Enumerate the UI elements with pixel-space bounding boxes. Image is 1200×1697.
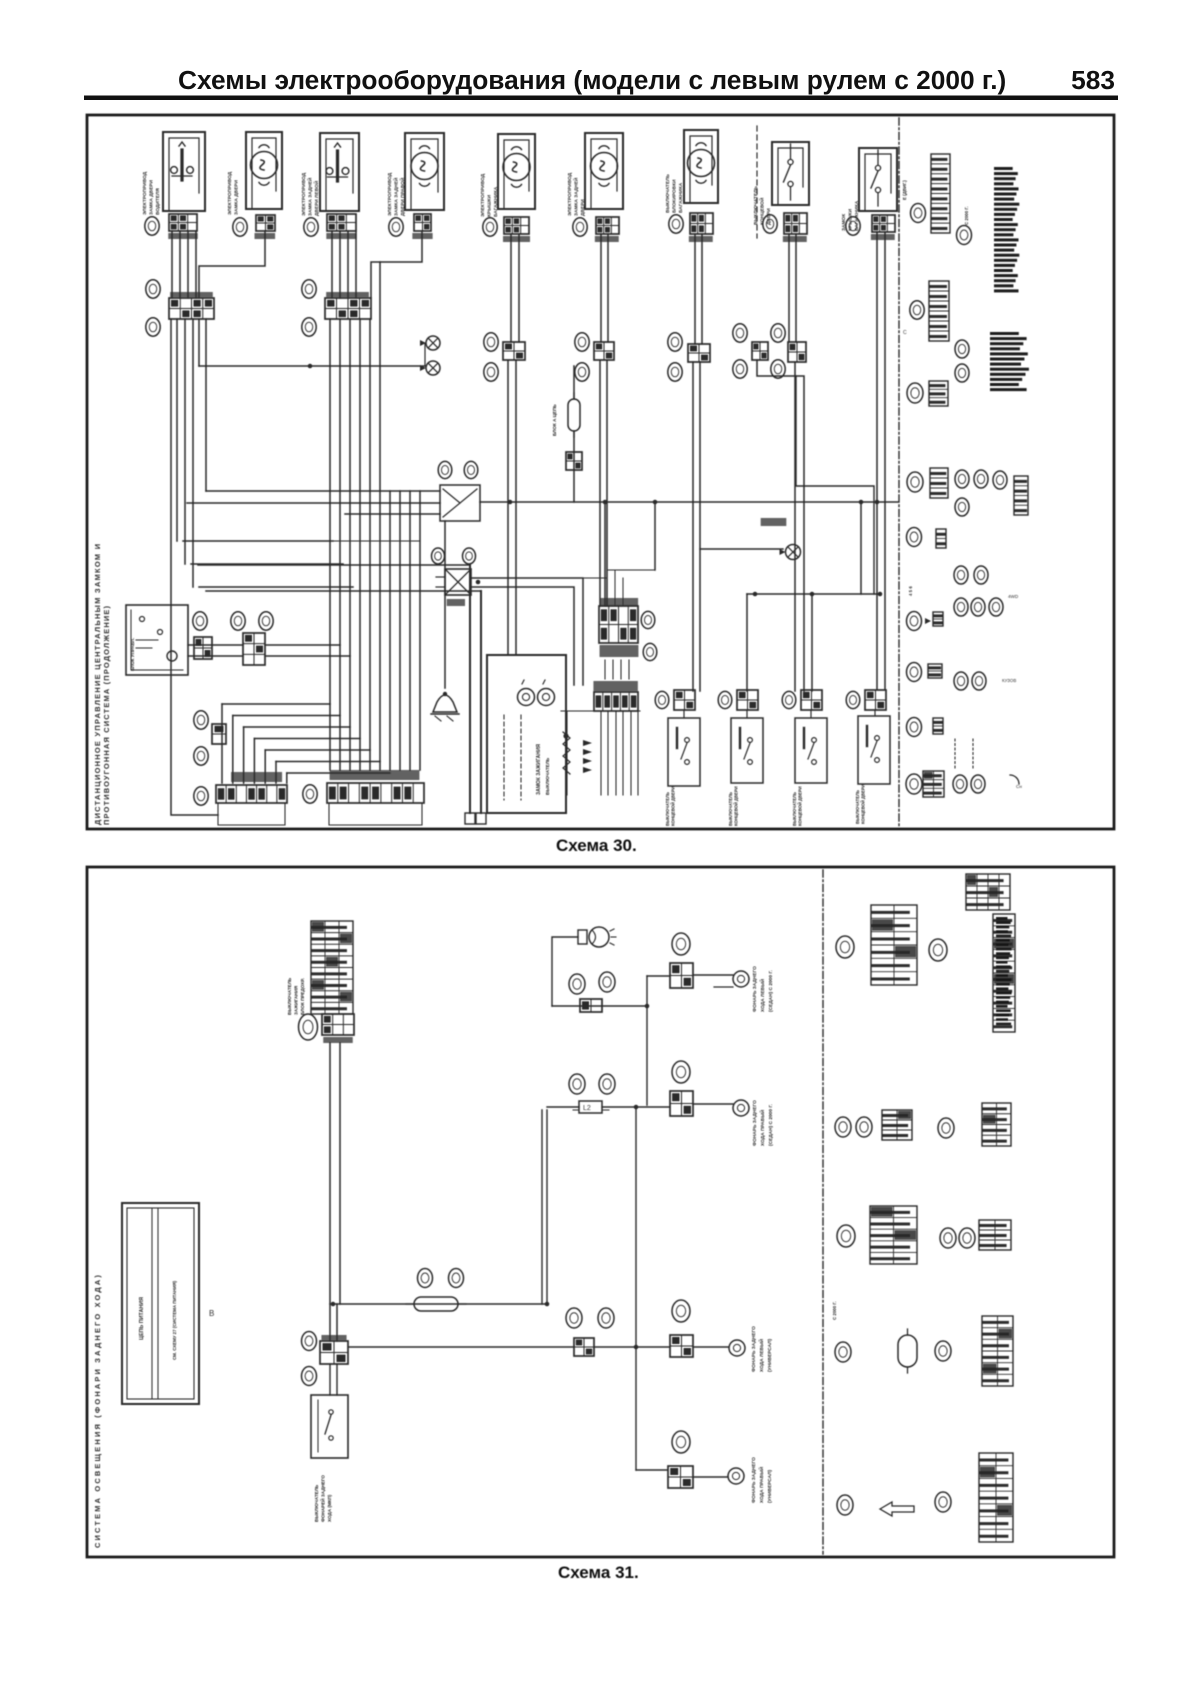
svg-text:ЦЕПЬ ПИТАНИЯ: ЦЕПЬ ПИТАНИЯ [139, 1297, 145, 1340]
svg-text:4 5 6: 4 5 6 [908, 586, 913, 596]
svg-text:В: В [209, 1309, 214, 1318]
svg-text:С 2000 Г.: С 2000 Г. [832, 1301, 837, 1320]
svg-text:(СЕДАН) С 2000 Г.: (СЕДАН) С 2000 Г. [768, 1104, 774, 1146]
svg-text:ВЫКЛЮЧАТЕЛЬ: ВЫКЛЮЧАТЕЛЬ [728, 792, 733, 826]
svg-text:Схема 30.: Схема 30. [556, 836, 637, 855]
svg-text:КОНЦЕВОЙ ДВЕРИ: КОНЦЕВОЙ ДВЕРИ [798, 786, 803, 826]
svg-text:ВЫКЛЮЧАТЕЛЬ: ВЫКЛЮЧАТЕЛЬ [665, 792, 670, 826]
svg-text:Сн: Сн [1016, 784, 1022, 789]
svg-text:L2: L2 [583, 1105, 591, 1112]
svg-text:ВЫКЛЮЧАТЕЛЬ: ВЫКЛЮЧАТЕЛЬ [545, 757, 550, 795]
svg-text:КОНЦЕВОЙ ДВЕРИ: КОНЦЕВОЙ ДВЕРИ [861, 784, 866, 824]
svg-text:СИСТЕМА ОСВЕЩЕНИЯ (ФОНАРИ ЗАДН: СИСТЕМА ОСВЕЩЕНИЯ (ФОНАРИ ЗАДНЕГО ХОДА) [93, 1273, 102, 1548]
svg-text:БЛОК А ЦЕПЬ: БЛОК А ЦЕПЬ [552, 404, 557, 436]
svg-text:ФОНАРЬ ЗАДНЕГО: ФОНАРЬ ЗАДНЕГО [751, 1457, 757, 1503]
svg-text:ДВЕРИ: ДВЕРИ [580, 199, 586, 216]
svg-text:ФОНАРЬ ЗАДНЕГО: ФОНАРЬ ЗАДНЕГО [752, 1100, 758, 1146]
svg-text:ВЫКЛЮЧАТЕЛЬ: ВЫКЛЮЧАТЕЛЬ [753, 186, 759, 225]
svg-text:ВОДИТЕЛЯ: ВОДИТЕЛЯ [155, 188, 161, 215]
svg-text:(СЕДАН) С 2000 Г.: (СЕДАН) С 2000 Г. [768, 970, 774, 1012]
svg-text:ЭЛЕКТРОПРИВОД: ЭЛЕКТРОПРИВОД [387, 172, 393, 216]
svg-text:БЛОКИРОВКИ: БЛОКИРОВКИ [672, 179, 678, 213]
svg-text:ЭЛЕКТРОПРИВОД: ЭЛЕКТРОПРИВОД [567, 172, 573, 216]
svg-text:ЗАМКА ДВЕРИ: ЗАМКА ДВЕРИ [149, 180, 155, 215]
svg-text:ФОНАРЬ ЗАДНЕГО: ФОНАРЬ ЗАДНЕГО [752, 966, 758, 1012]
svg-text:КОНЦЕВОЙ ДВЕРИ: КОНЦЕВОЙ ДВЕРИ [734, 786, 739, 826]
svg-text:ЗАМКА ДВЕРИ: ЗАМКА ДВЕРИ [234, 180, 240, 215]
svg-text:С: С [903, 330, 907, 336]
svg-text:ВЫКЛЮЧАТЕЛЬ: ВЫКЛЮЧАТЕЛЬ [792, 792, 797, 826]
svg-text:КУЗОВ: КУЗОВ [1002, 678, 1016, 683]
svg-text:БЛОК ПРЕДОХР.: БЛОК ПРЕДОХР. [300, 978, 305, 1015]
svg-text:583: 583 [1071, 65, 1115, 95]
svg-text:КОНЦЕВОЙ ДВЕРИ: КОНЦЕВОЙ ДВЕРИ [671, 786, 676, 826]
svg-text:ДИСТАНЦИОННОЕ УПРАВЛЕНИЕ ЦЕНТР: ДИСТАНЦИОННОЕ УПРАВЛЕНИЕ ЦЕНТРАЛЬНЫМ ЗАМ… [93, 543, 102, 825]
svg-text:ВЫКЛЮЧАТЕЛЬ: ВЫКЛЮЧАТЕЛЬ [665, 174, 671, 213]
svg-text:ЗАЖИГАНИЯ: ЗАЖИГАНИЯ [294, 986, 299, 1015]
svg-text:Е (ДВИГ.): Е (ДВИГ.) [902, 180, 907, 200]
svg-text:КРЫШКИ: КРЫШКИ [487, 194, 493, 217]
svg-text:БАГАЖНИКА: БАГАЖНИКА [678, 182, 684, 213]
svg-text:Схема 31.: Схема 31. [558, 1563, 639, 1582]
svg-text:БЛОК УПРАВЛ.: БЛОК УПРАВЛ. [130, 638, 135, 671]
svg-text:ФОНАРЕЙ ЗАДНЕГО: ФОНАРЕЙ ЗАДНЕГО [319, 1475, 326, 1522]
svg-text:СМ. СХЕМУ 27 (СИСТЕМА ПИТАНИЯ): СМ. СХЕМУ 27 (СИСТЕМА ПИТАНИЯ) [172, 1280, 177, 1360]
svg-text:ВЫКЛЮЧАТЕЛЬ: ВЫКЛЮЧАТЕЛЬ [287, 977, 292, 1015]
svg-text:(УНИВЕРСАЛ): (УНИВЕРСАЛ) [767, 1339, 773, 1372]
svg-text:(УНИВЕРСАЛ): (УНИВЕРСАЛ) [767, 1470, 773, 1503]
svg-text:ЭЛЕКТРОПРИВОД: ЭЛЕКТРОПРИВОД [227, 171, 233, 215]
svg-text:ФОНАРЬ ЗАДНЕГО: ФОНАРЬ ЗАДНЕГО [751, 1326, 757, 1372]
svg-text:Схемы электрооборудования (мод: Схемы электрооборудования (модели с левы… [178, 65, 1006, 95]
svg-text:ЭЛЕКТРОПРИВОД: ЭЛЕКТРОПРИВОД [301, 172, 307, 216]
svg-text:ПРОТИВОУГОННАЯ СИСТЕМА (ПРОДОЛ: ПРОТИВОУГОННАЯ СИСТЕМА (ПРОДОЛЖЕНИЕ) [102, 605, 111, 825]
svg-text:ЗАМОК ЗАЖИГАНИЯ: ЗАМОК ЗАЖИГАНИЯ [536, 744, 542, 795]
svg-text:ВЫКЛЮЧАТЕЛЬ: ВЫКЛЮЧАТЕЛЬ [855, 790, 860, 824]
svg-text:ЭЛЕКТРОПРИВОД: ЭЛЕКТРОПРИВОД [142, 171, 148, 215]
svg-text:ВЫКЛЮЧАТЕЛЬ: ВЫКЛЮЧАТЕЛЬ [314, 1484, 319, 1522]
svg-text:БАГАЖНИКА: БАГАЖНИКА [493, 186, 499, 217]
svg-text:ЭЛЕКТРОПРИВОД: ЭЛЕКТРОПРИВОД [480, 173, 486, 217]
svg-text:С 2000 Г.: С 2000 Г. [964, 206, 969, 225]
svg-text:ХОДА (МКП): ХОДА (МКП) [327, 1494, 332, 1522]
svg-text:4WD: 4WD [1008, 594, 1019, 599]
